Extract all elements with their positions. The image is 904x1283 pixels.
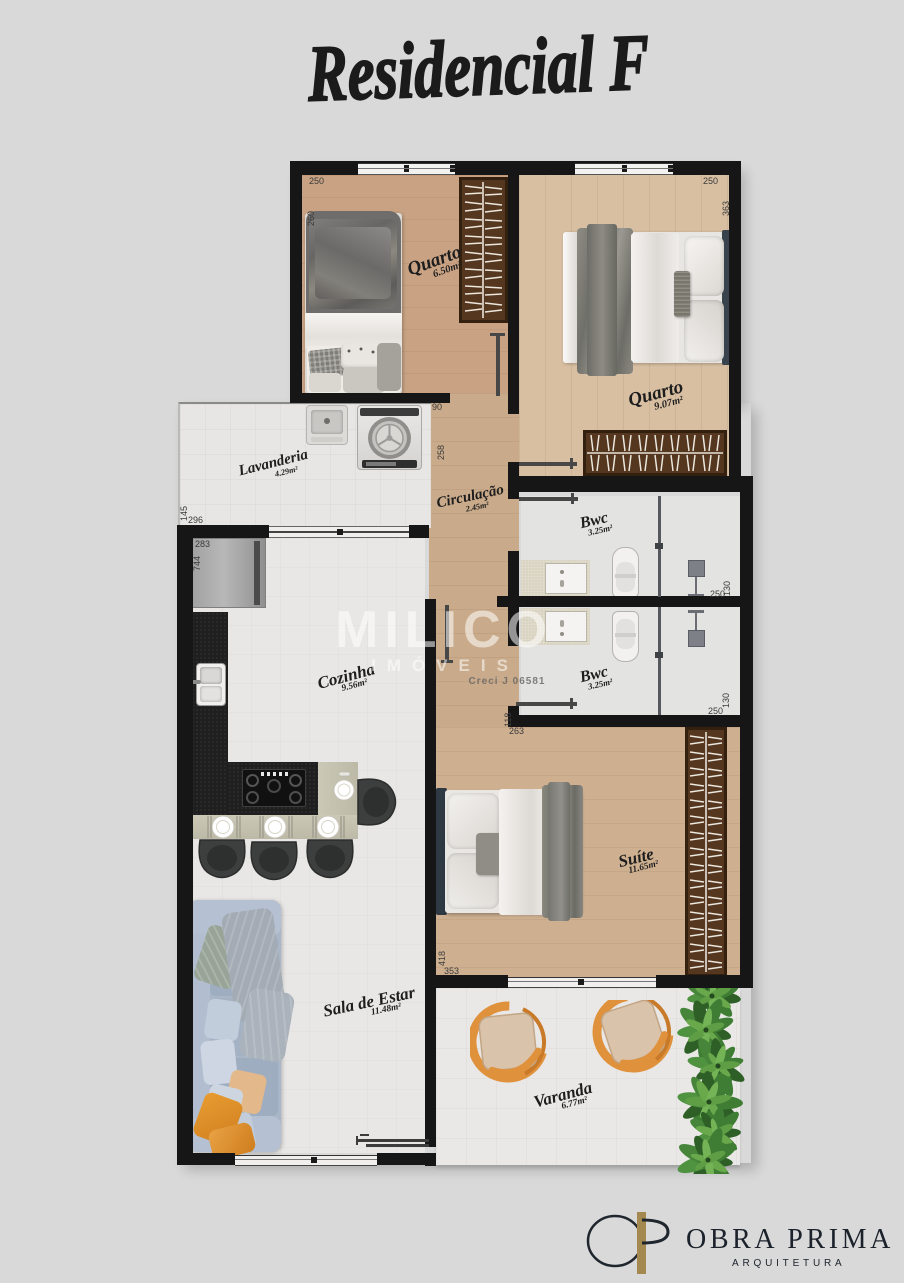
- svg-text:ARQUITETURA: ARQUITETURA: [732, 1258, 845, 1269]
- svg-text:OBRA PRIMA: OBRA PRIMA: [686, 1224, 894, 1255]
